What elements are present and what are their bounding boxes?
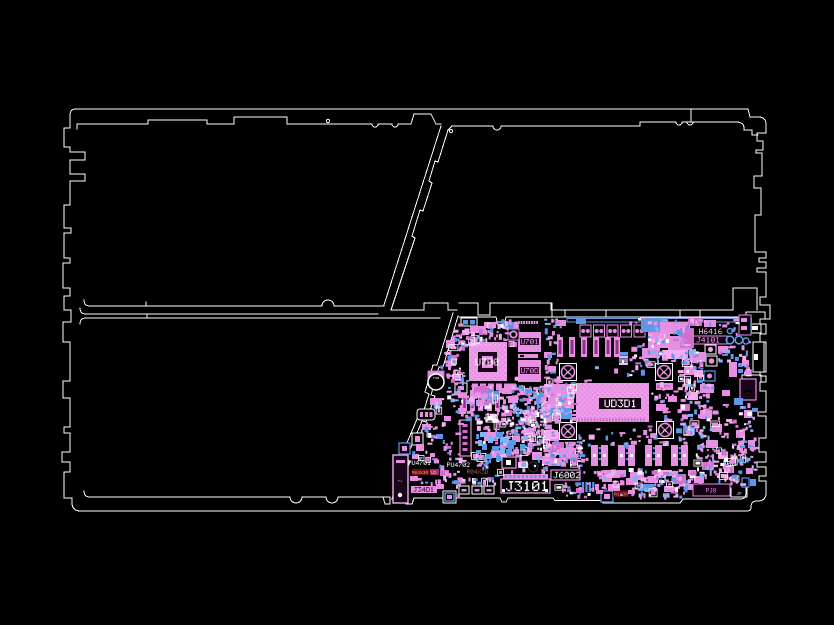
svg-text:U2: U2 xyxy=(431,470,437,476)
svg-text:PL: PL xyxy=(662,372,667,376)
svg-text:PL: PL xyxy=(566,372,571,376)
svg-text:PL: PL xyxy=(566,431,571,435)
svg-text:P4A: P4A xyxy=(433,377,440,381)
svg-text:PL: PL xyxy=(663,430,668,434)
svg-text:-: - xyxy=(747,391,749,395)
svg-text:PJ: PJ xyxy=(398,480,403,484)
svg-text:JP: JP xyxy=(736,491,742,497)
svg-text:MU4X30: MU4X30 xyxy=(412,470,429,476)
svg-text:PJ8: PJ8 xyxy=(706,488,717,495)
